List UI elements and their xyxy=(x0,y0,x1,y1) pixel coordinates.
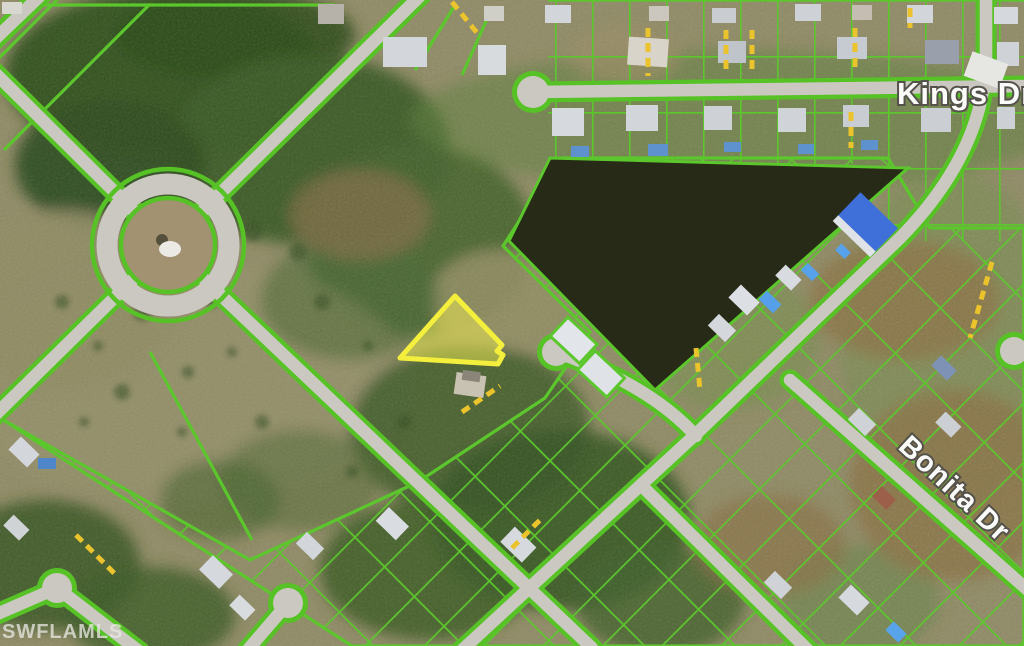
street-label-kings-dr: Kings Dr xyxy=(897,76,1024,111)
roundabout xyxy=(92,169,244,321)
roundabout-island-structure xyxy=(159,241,181,257)
satellite-map-canvas[interactable]: Kings Dr Bonita Dr SWFLAMLS xyxy=(0,0,1024,646)
watermark-swflamls: SWFLAMLS xyxy=(2,621,123,643)
pool xyxy=(571,146,589,157)
satellite-map-view[interactable]: Kings Dr Bonita Dr SWFLAMLS xyxy=(0,0,1024,646)
